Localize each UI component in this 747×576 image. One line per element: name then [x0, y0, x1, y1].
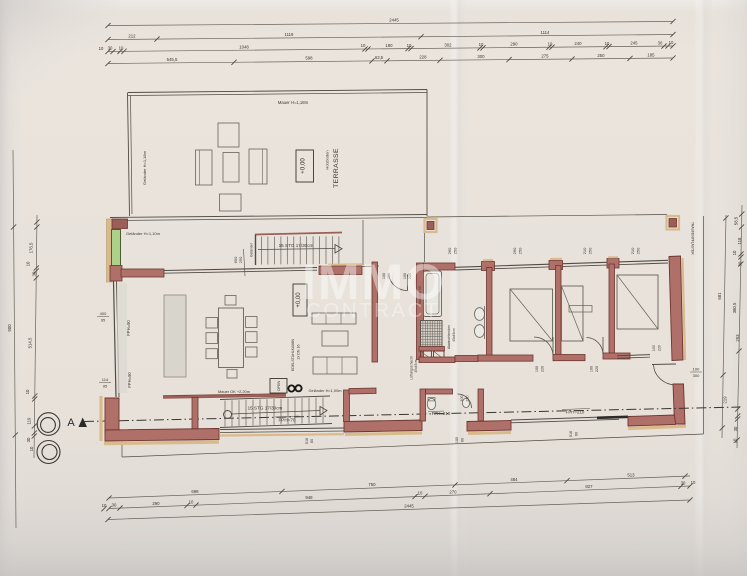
svg-text:60: 60 — [461, 438, 465, 442]
svg-text:10: 10 — [25, 261, 30, 266]
svg-text:290: 290 — [510, 42, 518, 47]
svg-text:100: 100 — [455, 437, 459, 443]
svg-text:516: 516 — [305, 438, 309, 444]
svg-text:827: 827 — [585, 484, 593, 489]
svg-text:176,5: 176,5 — [29, 242, 34, 253]
svg-text:30: 30 — [658, 40, 663, 45]
svg-text:10: 10 — [691, 480, 696, 485]
svg-text:30: 30 — [108, 46, 113, 51]
svg-text:100: 100 — [535, 366, 539, 372]
svg-text:10: 10 — [189, 500, 194, 505]
svg-text:270: 270 — [449, 489, 457, 494]
svg-text:60: 60 — [575, 432, 579, 436]
svg-text:OFEN: OFEN — [277, 380, 281, 391]
svg-text:250: 250 — [636, 247, 641, 254]
svg-text:513: 513 — [627, 472, 635, 477]
svg-text:Geländer H=1,10m: Geländer H=1,10m — [126, 231, 161, 236]
svg-text:1048: 1048 — [239, 44, 249, 49]
svg-text:210: 210 — [630, 247, 635, 254]
svg-text:10: 10 — [99, 46, 104, 51]
svg-text:210: 210 — [582, 247, 587, 254]
svg-text:253: 253 — [735, 334, 740, 342]
svg-text:10: 10 — [361, 43, 366, 48]
svg-text:10: 10 — [479, 42, 484, 47]
svg-text:228: 228 — [419, 55, 427, 60]
svg-text:380,5: 380,5 — [732, 302, 737, 313]
svg-text:119: 119 — [27, 417, 32, 424]
svg-text:30: 30 — [733, 426, 738, 431]
svg-text:CONTRACT: CONTRACT — [306, 299, 440, 322]
svg-text:484: 484 — [510, 477, 518, 482]
svg-text:302: 302 — [444, 42, 452, 47]
svg-text:400: 400 — [100, 311, 107, 316]
svg-text:100: 100 — [590, 366, 594, 372]
svg-text:2x DN 16: 2x DN 16 — [297, 345, 301, 360]
svg-text:+0,00: +0,00 — [300, 158, 307, 174]
svg-text:TRAUFENPFLASTER: TRAUFENPFLASTER — [691, 222, 695, 255]
svg-text:260: 260 — [512, 247, 517, 254]
svg-text:118: 118 — [737, 237, 742, 244]
svg-text:10: 10 — [29, 446, 34, 451]
svg-text:60: 60 — [310, 439, 314, 443]
svg-text:Abwaschbecken: Abwaschbecken — [447, 325, 451, 349]
svg-text:10: 10 — [669, 40, 674, 45]
svg-text:FPH=90: FPH=90 — [126, 320, 131, 336]
svg-text:10: 10 — [407, 43, 412, 48]
svg-text:45x45cm: 45x45cm — [414, 359, 418, 372]
svg-text:1114: 1114 — [541, 30, 551, 35]
svg-text:FPH=90: FPH=90 — [127, 372, 132, 388]
svg-text:750: 750 — [368, 482, 376, 487]
svg-text:Mauer OK +2,20m: Mauer OK +2,20m — [218, 389, 250, 394]
svg-text:185: 185 — [647, 52, 655, 57]
svg-text:220: 220 — [466, 395, 470, 401]
svg-text:180: 180 — [385, 43, 393, 48]
svg-text:10: 10 — [418, 491, 423, 496]
svg-text:514,5: 514,5 — [27, 337, 32, 348]
svg-text:Mauer H=1,18m: Mauer H=1,18m — [278, 100, 309, 105]
svg-text:300: 300 — [693, 373, 700, 378]
svg-text:FPH=70: FPH=70 — [279, 418, 296, 423]
svg-text:300: 300 — [477, 54, 485, 59]
svg-text:250: 250 — [588, 247, 593, 254]
svg-text:63,5: 63,5 — [375, 55, 384, 60]
svg-text:10: 10 — [605, 41, 610, 46]
svg-text:30: 30 — [737, 261, 742, 266]
svg-text:250: 250 — [518, 247, 523, 254]
svg-text:Holzboden: Holzboden — [325, 150, 330, 169]
svg-text:10: 10 — [25, 389, 30, 394]
svg-text:58,5: 58,5 — [734, 216, 739, 225]
svg-text:100: 100 — [652, 345, 656, 351]
svg-text:30: 30 — [681, 481, 686, 486]
svg-text:10: 10 — [548, 41, 553, 46]
svg-text:220: 220 — [595, 366, 599, 372]
svg-text:Geländer H=1,18m: Geländer H=1,18m — [142, 150, 147, 185]
svg-text:15 STG 17/30cm: 15 STG 17/30cm — [279, 243, 314, 248]
svg-text:A: A — [67, 417, 75, 429]
svg-text:545,5: 545,5 — [167, 57, 178, 62]
svg-text:FPH=210: FPH=210 — [566, 410, 585, 415]
svg-text:30: 30 — [26, 437, 31, 442]
svg-text:30: 30 — [31, 271, 36, 276]
svg-text:95: 95 — [103, 384, 108, 389]
svg-text:250: 250 — [238, 256, 243, 263]
svg-text:10: 10 — [733, 438, 738, 443]
svg-text:114: 114 — [102, 377, 109, 382]
svg-text:100: 100 — [693, 367, 700, 372]
svg-text:698: 698 — [191, 489, 199, 494]
svg-text:1119: 1119 — [285, 32, 295, 37]
svg-text:EDELSTAHLKAMIN: EDELSTAHLKAMIN — [291, 339, 295, 371]
svg-text:10: 10 — [119, 46, 124, 51]
svg-text:681: 681 — [717, 292, 722, 300]
svg-text:95: 95 — [101, 318, 106, 323]
svg-text:Geländer: Geländer — [250, 242, 254, 257]
svg-text:250: 250 — [597, 53, 605, 58]
svg-text:45x45cm: 45x45cm — [452, 328, 456, 342]
svg-text:10: 10 — [732, 250, 737, 255]
svg-text:948: 948 — [305, 495, 313, 500]
svg-text:Geländer H=1,00m: Geländer H=1,00m — [309, 388, 342, 393]
svg-text:15 STG 17/30cm: 15 STG 17/30cm — [248, 406, 283, 411]
svg-text:10: 10 — [102, 503, 107, 508]
svg-text:Lüftungsschacht: Lüftungsschacht — [410, 356, 414, 379]
svg-text:2445: 2445 — [404, 504, 414, 509]
svg-text:290: 290 — [152, 501, 160, 506]
svg-text:100: 100 — [460, 395, 464, 401]
svg-text:245: 245 — [630, 41, 638, 46]
svg-text:220: 220 — [658, 345, 662, 351]
svg-text:900: 900 — [7, 324, 12, 332]
svg-text:220: 220 — [541, 366, 545, 372]
svg-text:2445: 2445 — [389, 18, 399, 23]
svg-text:30: 30 — [112, 503, 117, 508]
svg-text:516: 516 — [569, 431, 573, 437]
svg-text:219: 219 — [723, 396, 728, 404]
svg-text:TERRASSE: TERRASSE — [333, 148, 340, 188]
svg-text:250: 250 — [453, 247, 458, 254]
svg-text:240: 240 — [574, 41, 582, 46]
svg-text:212: 212 — [128, 34, 136, 39]
svg-text:FPH=210: FPH=210 — [432, 411, 451, 416]
svg-text:598: 598 — [305, 56, 313, 61]
svg-text:260: 260 — [447, 247, 452, 254]
svg-text:275: 275 — [541, 53, 549, 58]
